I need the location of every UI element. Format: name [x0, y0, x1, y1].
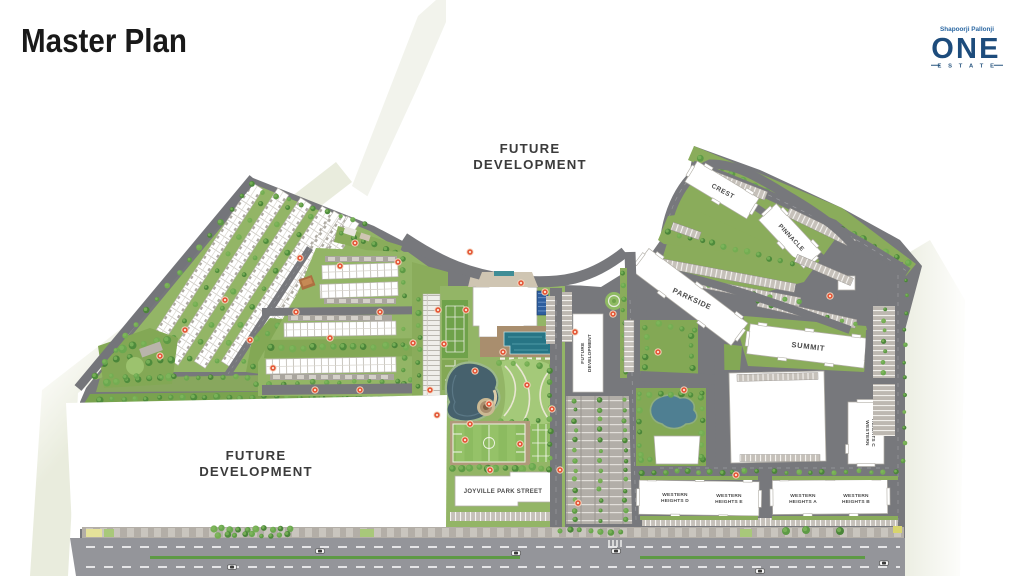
svg-text:WESTERN: WESTERN: [843, 493, 869, 499]
svg-text:HEIGHTS E: HEIGHTS E: [715, 499, 743, 505]
svg-text:FUTURE: FUTURE: [500, 141, 561, 156]
svg-text:HEIGHTS A: HEIGHTS A: [789, 499, 817, 505]
svg-text:HEIGHTS D: HEIGHTS D: [661, 498, 689, 504]
svg-text:FUTURE: FUTURE: [580, 342, 585, 363]
svg-text:HEIGHTS B: HEIGHTS B: [842, 499, 870, 505]
svg-text:DEVELOPMENT: DEVELOPMENT: [199, 464, 313, 479]
svg-text:WESTERN: WESTERN: [662, 492, 688, 498]
svg-text:WESTERN: WESTERN: [716, 493, 742, 499]
svg-text:E S T A T E: E S T A T E: [937, 64, 996, 70]
svg-text:JOYVILLE PARK STREET: JOYVILLE PARK STREET: [464, 489, 543, 495]
svg-text:Master Plan: Master Plan: [21, 23, 187, 60]
svg-text:FUTURE: FUTURE: [226, 448, 287, 463]
svg-text:ONE: ONE: [931, 33, 1000, 65]
svg-text:WESTERN: WESTERN: [790, 493, 816, 499]
svg-text:WESTERN: WESTERN: [864, 420, 870, 446]
svg-text:DEVELOPMENT: DEVELOPMENT: [473, 157, 587, 172]
svg-text:DEVELOPMENT: DEVELOPMENT: [587, 334, 592, 372]
svg-text:Shapoorji Pallonji: Shapoorji Pallonji: [940, 26, 994, 33]
